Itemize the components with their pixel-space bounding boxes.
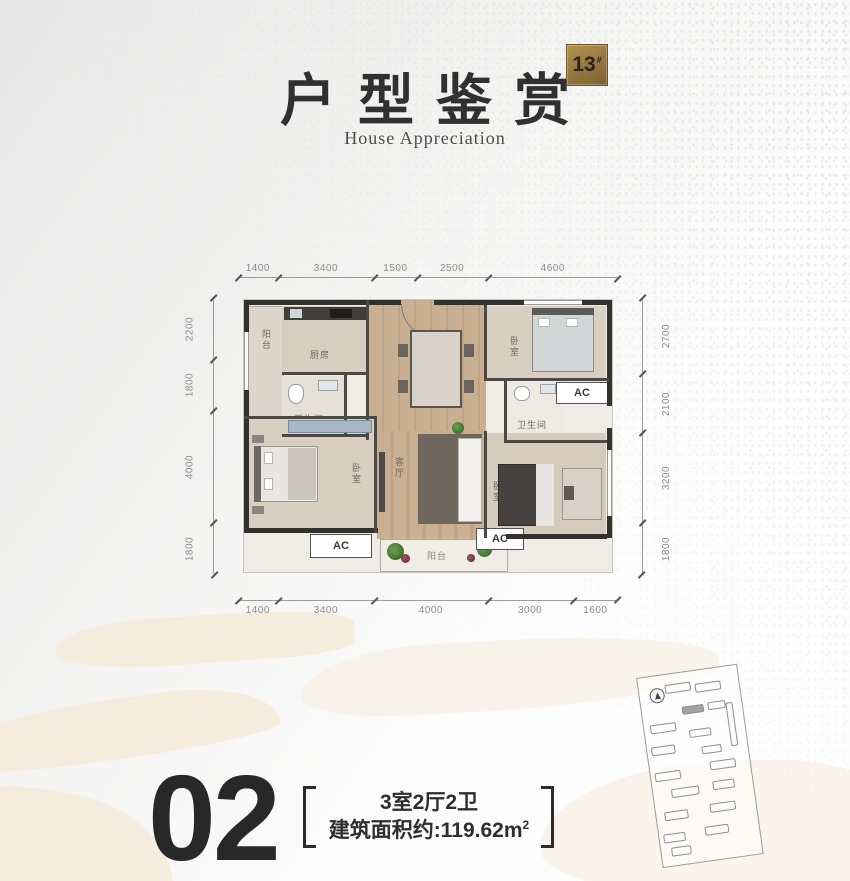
kitchen-sink <box>290 309 302 318</box>
interior-wall <box>282 372 368 375</box>
dim-value: 1400 <box>246 263 270 274</box>
nightstand <box>252 506 264 514</box>
plant-icon <box>401 554 410 563</box>
dining-chair <box>398 380 408 393</box>
building-footprint <box>712 778 735 790</box>
dim-value: 3400 <box>314 263 338 274</box>
dim-value: 2700 <box>661 324 672 348</box>
building-footprint <box>663 832 686 844</box>
dimension-chain-top: 1400 3400 1500 2500 4600 <box>238 262 618 278</box>
poster-canvas: 户型鉴赏 13# House Appreciation 1400 3400 15… <box>0 0 850 881</box>
desk-chair <box>564 486 574 500</box>
dim-value: 4600 <box>541 263 565 274</box>
wall <box>506 534 607 539</box>
building-footprint <box>671 845 692 857</box>
room-label: 阳台 <box>260 329 273 351</box>
interior-wall <box>484 378 609 381</box>
dim-value: 2500 <box>440 263 464 274</box>
wall <box>244 528 378 533</box>
pillow <box>538 318 550 327</box>
dim-value: 2100 <box>661 391 672 415</box>
building-footprint <box>704 824 729 836</box>
bath-sink <box>318 380 338 391</box>
unit-area: 建筑面积约:119.62m2 <box>318 817 540 845</box>
interior-wall <box>504 440 607 443</box>
window <box>607 450 612 516</box>
interior-wall <box>504 380 507 442</box>
building-footprint <box>671 785 700 798</box>
wardrobe <box>288 420 372 433</box>
room-label: 阳台 <box>427 549 447 562</box>
building-number-badge: 13# <box>566 44 608 86</box>
dining-chair <box>464 344 474 357</box>
dim-value: 3200 <box>661 466 672 490</box>
dim-value: 1800 <box>185 373 196 397</box>
building-footprint-highlighted <box>681 704 704 715</box>
page-subtitle: House Appreciation <box>0 128 850 149</box>
unit-area-text: 建筑面积约:119.62m <box>329 819 523 842</box>
unit-area-sup: 2 <box>523 818 530 832</box>
building-footprint <box>664 682 691 695</box>
dim-value: 4000 <box>185 455 196 479</box>
wall <box>244 417 249 533</box>
blanket <box>288 448 316 500</box>
pillow <box>264 478 273 490</box>
north-arrow-icon <box>649 687 666 704</box>
room-label: 卧室 <box>508 336 521 358</box>
toilet <box>288 384 304 404</box>
interior-wall <box>244 416 376 419</box>
dim-value: 2200 <box>185 317 196 341</box>
dimension-chain-right: 2700 2100 3200 1800 <box>642 298 658 574</box>
dim-value: 1600 <box>583 605 607 616</box>
bracket-right <box>541 786 554 848</box>
dining-chair <box>464 380 474 393</box>
building-footprint <box>709 800 736 813</box>
room-balcony-top: 阳台 <box>248 306 284 420</box>
room-label: 客厅 <box>393 457 406 479</box>
sofa <box>458 438 482 522</box>
room-label: 卧室 <box>350 463 363 485</box>
ac-label: AC <box>333 540 349 552</box>
floor-plan: 阳台 厨房 卫生间 餐厅 卧室 卫生间 卧室 客厅 卧室 阳台 <box>244 300 612 572</box>
dimension-chain-bottom: 1400 3400 4000 3000 1600 <box>238 600 618 616</box>
pillow <box>566 318 578 327</box>
bed-headboard <box>254 446 261 502</box>
wall <box>434 300 612 305</box>
unit-info: 3室2厅2卫 建筑面积约:119.62m2 <box>318 789 540 846</box>
building-footprint <box>650 722 677 735</box>
dimension-chain-left: 2200 1800 4000 1800 <box>198 298 214 574</box>
window <box>244 332 249 390</box>
room-label: 厨房 <box>310 348 330 361</box>
building-footprint <box>709 758 736 771</box>
badge-hash: # <box>597 55 602 65</box>
interior-wall <box>484 431 487 538</box>
unit-layout: 3室2厅2卫 <box>318 789 540 817</box>
building-footprint <box>651 744 676 756</box>
building-footprint <box>725 702 738 747</box>
dim-value: 1800 <box>185 537 196 561</box>
wall <box>244 300 401 305</box>
interior-wall <box>282 434 368 437</box>
badge-number: 13 <box>572 53 595 77</box>
window <box>524 300 582 305</box>
blanket <box>536 464 554 526</box>
kitchen-stove <box>330 309 352 318</box>
ac-label: AC <box>574 387 590 399</box>
dim-value: 1400 <box>246 605 270 616</box>
bracket-left <box>303 786 316 848</box>
room-label: 卫生间 <box>517 418 547 431</box>
toilet <box>514 386 530 401</box>
dining-chair <box>398 344 408 357</box>
pillow <box>264 452 273 464</box>
building-footprint <box>654 770 681 783</box>
dining-table <box>410 330 462 408</box>
ac-platform-bottom-left: AC <box>310 534 372 558</box>
bed-headboard <box>532 308 594 315</box>
tv-stand <box>379 452 385 512</box>
interior-wall <box>484 305 487 381</box>
ac-platform-right: AC <box>556 382 608 404</box>
bath-sink <box>540 384 556 394</box>
nightstand <box>252 435 264 443</box>
page-title: 户型鉴赏 <box>0 56 850 137</box>
unit-number: 02 <box>148 748 318 881</box>
interior-wall <box>366 300 369 440</box>
wall <box>607 300 612 406</box>
dim-value: 3000 <box>518 605 542 616</box>
building-footprint <box>694 680 721 693</box>
dim-value: 1500 <box>383 263 407 274</box>
building-footprint <box>664 809 689 821</box>
plant-icon <box>467 554 475 562</box>
dim-value: 1800 <box>661 537 672 561</box>
building-footprint <box>701 744 722 755</box>
interior-wall <box>374 416 377 532</box>
building-footprint <box>689 727 712 738</box>
dim-value: 3400 <box>314 605 338 616</box>
dim-value: 4000 <box>419 605 443 616</box>
plant-icon <box>452 422 464 434</box>
building-footprint <box>707 700 726 710</box>
site-plan <box>636 664 764 868</box>
